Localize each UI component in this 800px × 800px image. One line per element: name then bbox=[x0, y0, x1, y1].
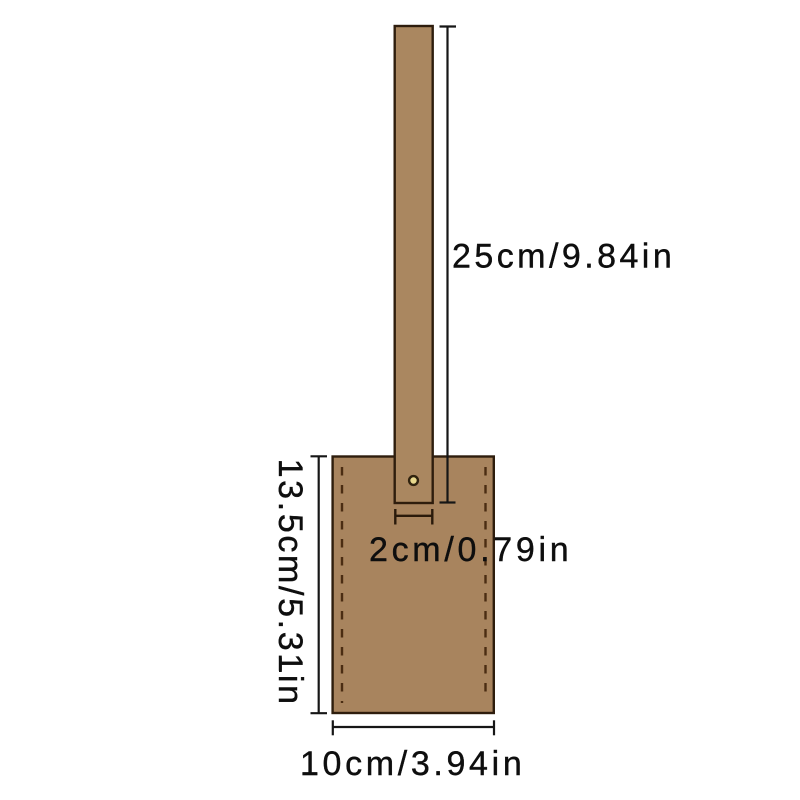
svg-text:10cm/3.94in: 10cm/3.94in bbox=[300, 745, 525, 783]
svg-text:2cm/0.79in: 2cm/0.79in bbox=[369, 531, 572, 569]
svg-text:25cm/9.84in: 25cm/9.84in bbox=[452, 238, 675, 276]
svg-text:13.5cm/5.31in: 13.5cm/5.31in bbox=[271, 459, 309, 707]
